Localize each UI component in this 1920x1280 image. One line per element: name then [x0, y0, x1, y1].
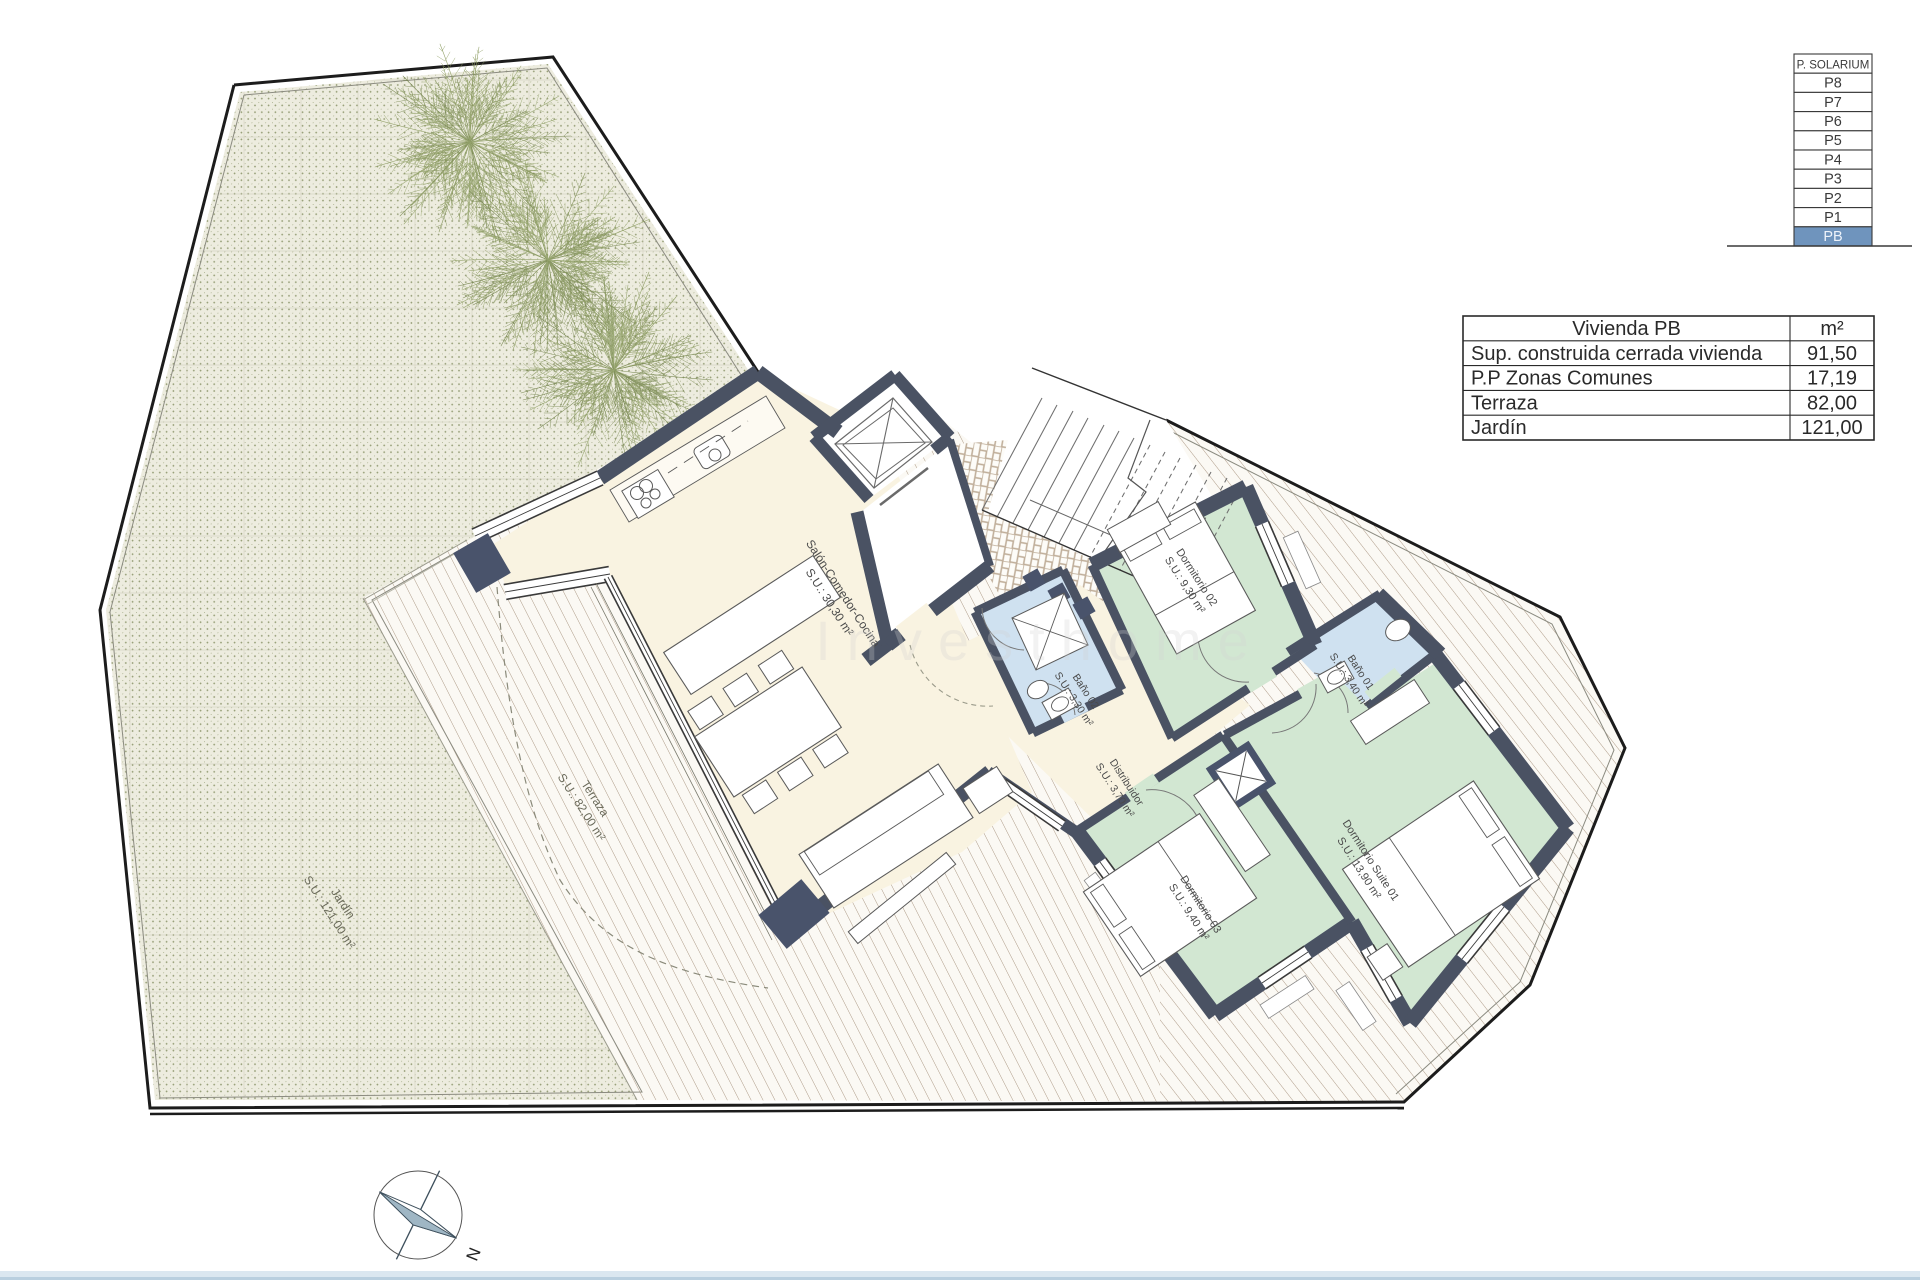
svg-text:m²: m²: [1820, 318, 1844, 340]
svg-text:P8: P8: [1824, 76, 1842, 92]
svg-text:P3: P3: [1824, 172, 1842, 188]
svg-text:P1: P1: [1824, 210, 1842, 226]
svg-text:P7: P7: [1824, 95, 1842, 111]
svg-text:121,00: 121,00: [1801, 417, 1862, 439]
svg-text:P2: P2: [1824, 191, 1842, 207]
svg-text:17,19: 17,19: [1807, 368, 1857, 390]
svg-text:PB: PB: [1823, 229, 1842, 245]
svg-text:Terraza: Terraza: [1471, 392, 1539, 414]
svg-text:82,00: 82,00: [1807, 392, 1857, 414]
svg-text:P4: P4: [1824, 152, 1842, 168]
svg-text:P.P Zonas Comunes: P.P Zonas Comunes: [1471, 368, 1653, 390]
svg-text:P5: P5: [1824, 133, 1842, 149]
svg-text:P6: P6: [1824, 114, 1842, 130]
svg-text:Jardín: Jardín: [1471, 417, 1527, 439]
svg-text:Investhome: Investhome: [815, 609, 1265, 672]
svg-text:Vivienda PB: Vivienda PB: [1572, 318, 1681, 340]
svg-text:Sup. construida cerrada vivien: Sup. construida cerrada vivienda: [1471, 343, 1763, 365]
svg-text:91,50: 91,50: [1807, 343, 1857, 365]
svg-text:P. SOLARIUM: P. SOLARIUM: [1797, 59, 1870, 71]
